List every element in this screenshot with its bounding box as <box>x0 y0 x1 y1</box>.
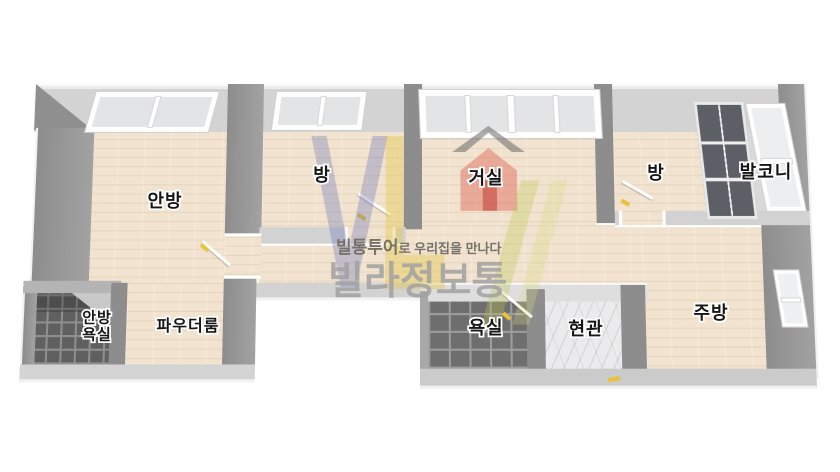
room-label-anbang-yoksil: 안방 욕실 <box>82 311 112 344</box>
anbang-window <box>85 92 219 132</box>
bottom-left-south-wall <box>19 364 255 382</box>
room-label-jubang: 주방 <box>693 299 728 325</box>
anbang-yoksil-north-wall <box>23 281 122 293</box>
wall-paudeoreum-east <box>222 272 257 379</box>
window-mullion <box>317 97 325 125</box>
room-label-bang-front: 방 <box>313 161 331 187</box>
room-label-anbang-yoksil-line2: 욕실 <box>82 327 112 344</box>
room-label-paudeoreum: 파우더룸 <box>157 312 220 336</box>
west-exterior-wall <box>29 128 94 285</box>
jubang-floor <box>641 225 768 371</box>
room-label-anbang-yoksil-line1: 안방 <box>82 311 112 328</box>
geosil-window <box>419 90 602 138</box>
window-mullion <box>781 298 800 301</box>
room-label-yoksil: 욕실 <box>468 314 503 340</box>
room-label-balkoni: 발코니 <box>740 158 793 184</box>
window-mullion <box>553 96 559 132</box>
anbang-door-opening <box>224 233 262 278</box>
room-label-anbang: 안방 <box>147 187 182 213</box>
room-label-bang-rear: 방 <box>647 159 665 185</box>
bang-rear-door-opening <box>619 211 666 225</box>
watermark-brand-large: 빌라정보통 <box>328 250 507 306</box>
window-mullion <box>466 96 471 132</box>
wall-hyeongwan-jubang <box>620 285 647 375</box>
bang-front-window <box>272 92 366 130</box>
window-mullion <box>508 96 516 132</box>
room-label-geosil: 거실 <box>468 164 503 190</box>
floorplan-page: { "watermark": { "tagline_brand": "빌통투어"… <box>0 0 840 472</box>
room-label-hyeongwan: 현관 <box>568 315 603 341</box>
window-mullion <box>148 97 160 127</box>
wall-anbang-bang <box>225 84 264 233</box>
